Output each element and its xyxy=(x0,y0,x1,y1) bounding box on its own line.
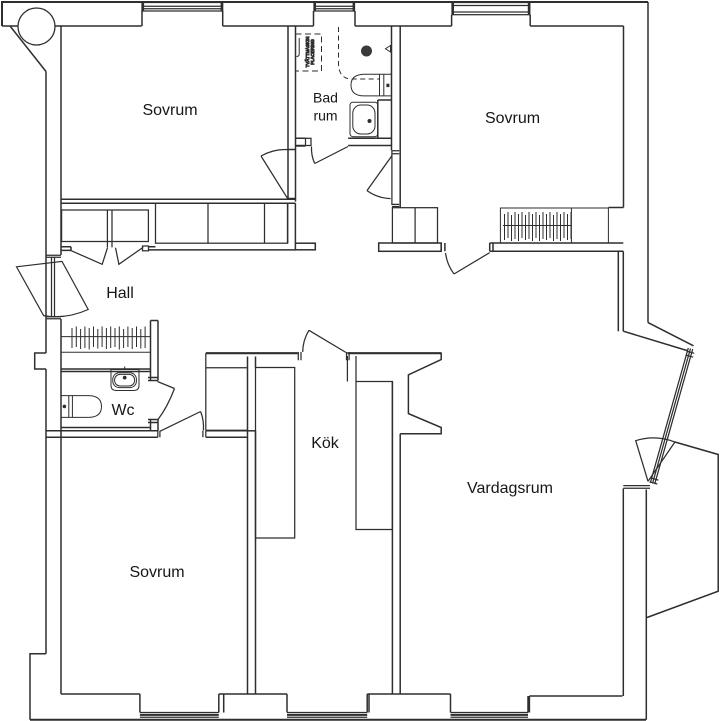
svg-text:Kök: Kök xyxy=(311,435,340,452)
svg-text:Wc: Wc xyxy=(111,402,134,419)
svg-text:PLACERING: PLACERING xyxy=(310,39,315,65)
svg-text:Sovrum: Sovrum xyxy=(129,564,184,581)
svg-text:Vardagsrum: Vardagsrum xyxy=(467,480,553,497)
svg-text:Bad: Bad xyxy=(313,90,338,106)
svg-text:Sovrum: Sovrum xyxy=(485,110,540,127)
svg-text:Hall: Hall xyxy=(106,285,134,302)
svg-text:Sovrum: Sovrum xyxy=(142,102,197,119)
svg-text:rum: rum xyxy=(313,108,337,124)
